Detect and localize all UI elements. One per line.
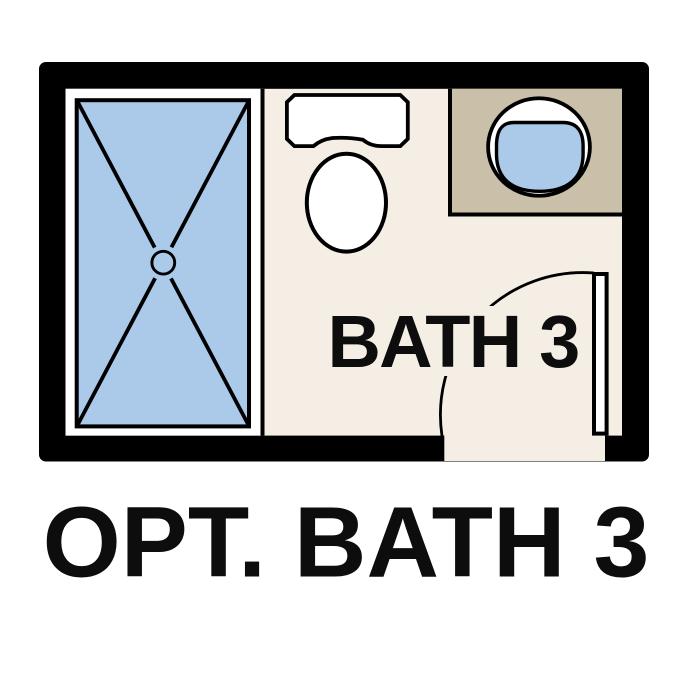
svg-text:OPT. BATH 3: OPT. BATH 3 [43,486,650,598]
svg-text:BATH 3: BATH 3 [328,300,579,383]
